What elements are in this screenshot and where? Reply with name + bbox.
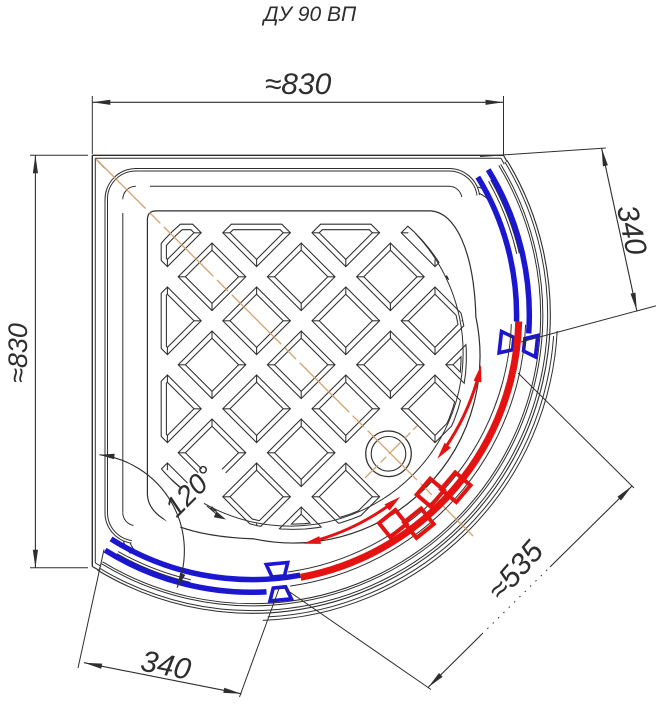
svg-text:≈830: ≈830 <box>265 68 332 101</box>
svg-text:≈830: ≈830 <box>3 323 33 383</box>
svg-text:ДУ 90 ВП: ДУ 90 ВП <box>262 3 357 26</box>
